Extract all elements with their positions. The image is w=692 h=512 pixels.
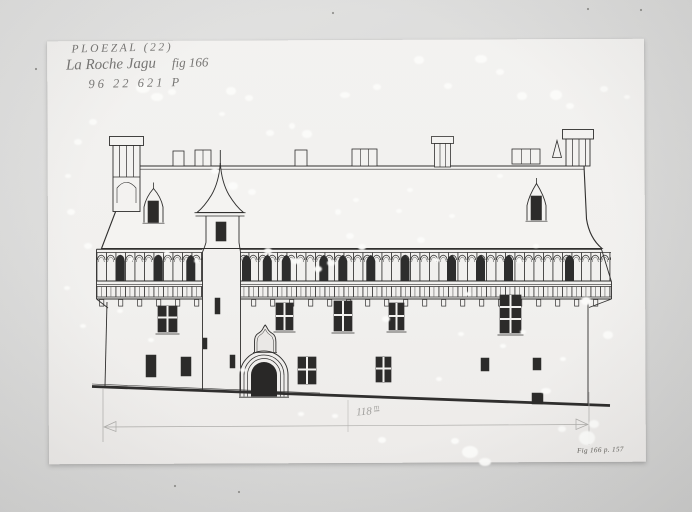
ridge-stack — [195, 150, 211, 166]
cross-window — [298, 357, 316, 384]
ridge-stack — [295, 150, 307, 166]
handwritten-annotation-block: PLOEZAL (22) La Roche Jagufig 166 96 22 … — [65, 40, 209, 91]
cross-window — [332, 301, 355, 333]
tall-mid-chimney — [432, 137, 454, 168]
annotation-figure-ref: fig 166 — [172, 54, 209, 70]
ridge-stack — [512, 149, 540, 164]
cross-window — [387, 303, 407, 332]
hip-finial — [553, 141, 562, 158]
windows — [146, 295, 543, 404]
turret-slit — [215, 298, 220, 314]
ogee-niche — [253, 325, 277, 353]
annotation-commune: PLOEZAL (22) — [71, 40, 208, 55]
cross-window-tall — [498, 295, 524, 335]
cross-window — [274, 303, 296, 332]
cross-window — [156, 306, 180, 334]
machicolated-gallery — [97, 249, 612, 308]
turret-slit — [230, 355, 235, 368]
right-corner-chimney — [563, 130, 594, 167]
ridge-stack — [352, 149, 377, 166]
turret-slit — [203, 338, 207, 349]
door-opening — [251, 362, 277, 397]
wall-left-edge — [105, 302, 107, 386]
annotation-title: La Roche Jagufig 166 — [66, 55, 209, 74]
turret-window — [216, 222, 226, 241]
caption-annotation: Fig 166 p. 157 — [577, 445, 624, 455]
photo-background: PLOEZAL (22) La Roche Jagufig 166 96 22 … — [0, 0, 692, 512]
cross-window — [376, 357, 391, 382]
ridge-stack — [173, 151, 184, 166]
annotation-inventory-number: 96 22 621 P — [88, 75, 209, 91]
dimension-arrow-left — [104, 422, 116, 432]
scale-annotation: 118 m — [356, 402, 380, 418]
scale-unit: m — [373, 402, 379, 411]
left-corner-chimney — [110, 137, 144, 212]
